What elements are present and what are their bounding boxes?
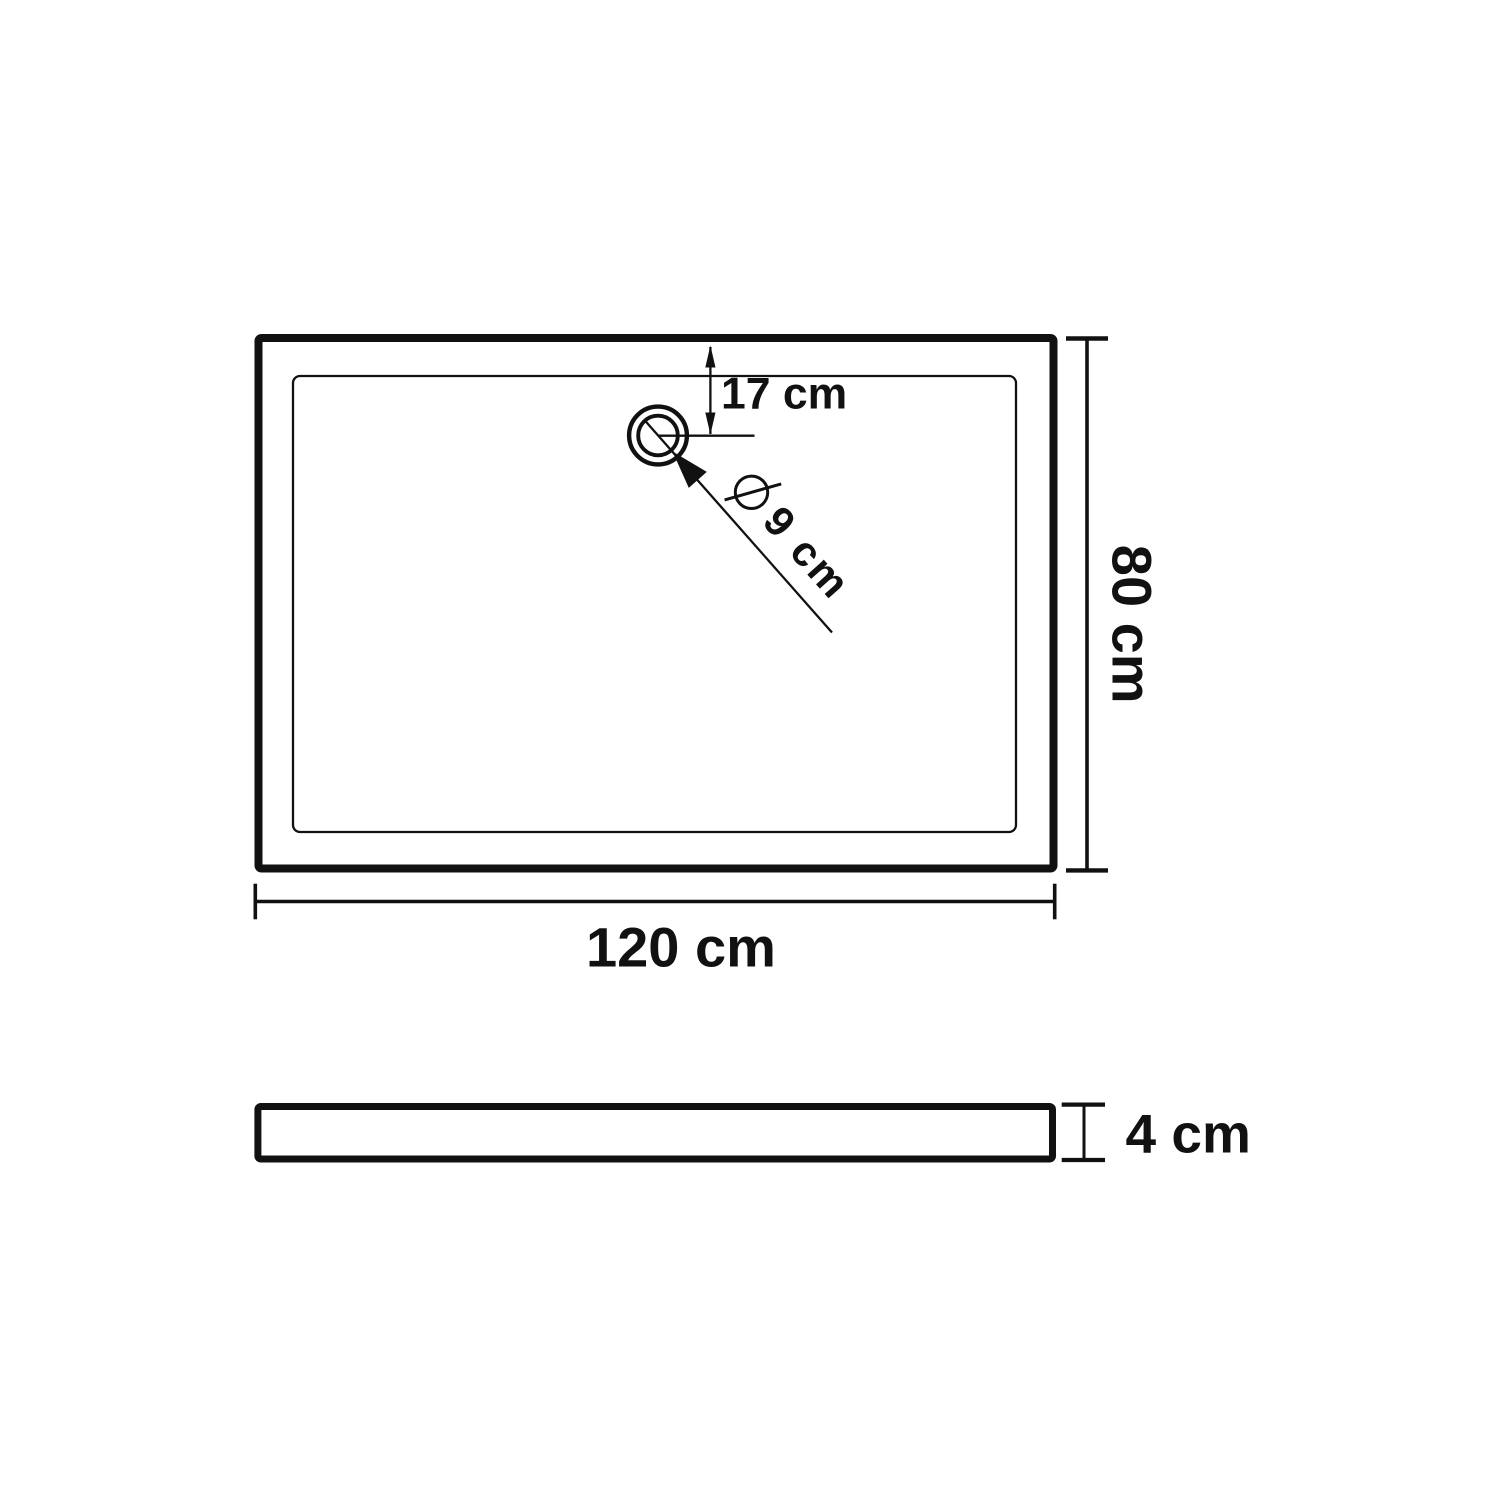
svg-text:120 cm: 120 cm — [586, 916, 776, 979]
svg-text:17 cm: 17 cm — [721, 370, 847, 419]
svg-text:80 cm: 80 cm — [1101, 545, 1164, 704]
svg-text:4 cm: 4 cm — [1126, 1103, 1251, 1165]
